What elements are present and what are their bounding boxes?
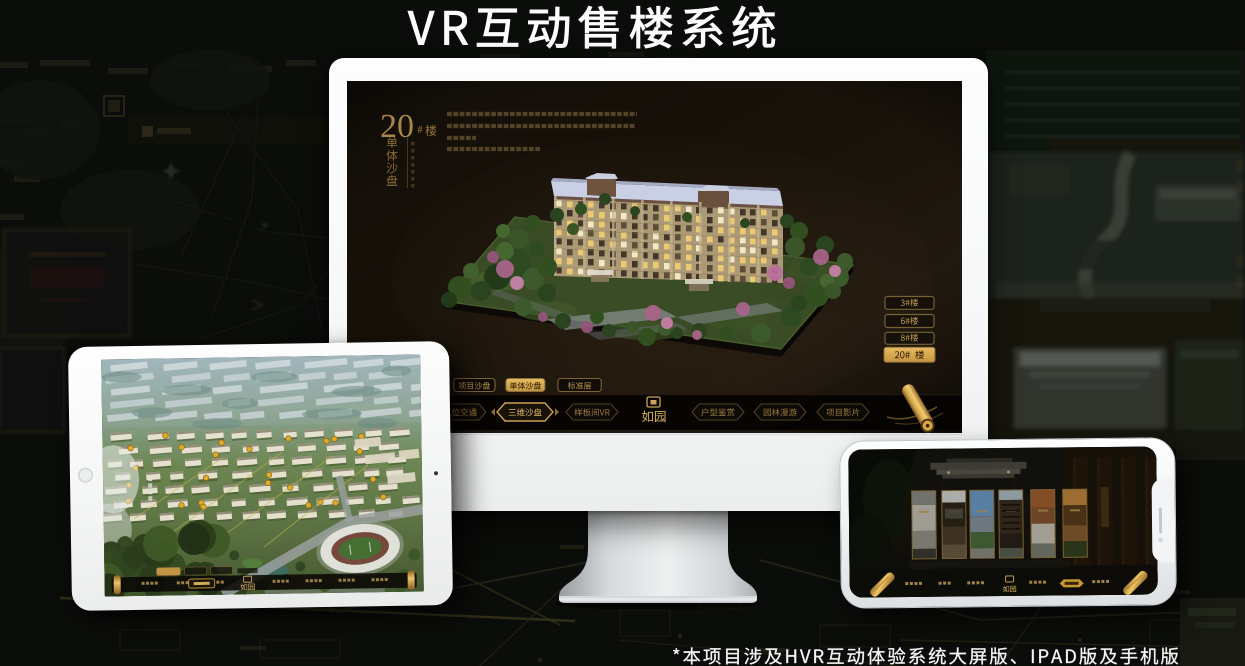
svg-text:20: 20 <box>380 108 414 145</box>
